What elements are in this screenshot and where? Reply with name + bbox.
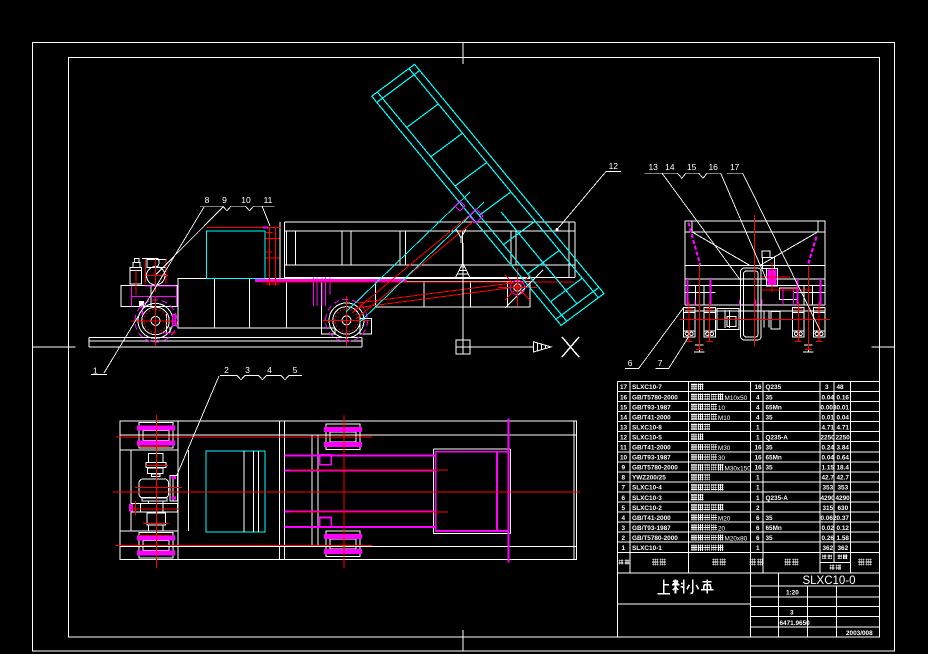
svg-text:14: 14 [665, 162, 675, 172]
svg-text:48: 48 [837, 384, 845, 391]
svg-text:4290: 4290 [836, 495, 851, 502]
svg-text:0.24: 0.24 [822, 445, 835, 452]
svg-text:SLXC10-7: SLXC10-7 [632, 384, 662, 391]
svg-text:0.37: 0.37 [837, 515, 850, 522]
svg-text:SLXC10-2: SLXC10-2 [632, 505, 662, 512]
svg-text:M20: M20 [718, 516, 731, 523]
svg-text:65Mn: 65Mn [766, 404, 782, 411]
svg-text:2: 2 [224, 365, 229, 375]
svg-text:5: 5 [622, 505, 626, 512]
svg-text:353: 353 [823, 485, 834, 492]
svg-text:35: 35 [766, 535, 774, 542]
svg-text:0.26: 0.26 [822, 535, 835, 542]
svg-text:42.7: 42.7 [837, 475, 850, 482]
svg-text:GB/T41-2000: GB/T41-2000 [632, 445, 671, 452]
svg-text:7: 7 [658, 358, 663, 368]
svg-text:0.04: 0.04 [822, 394, 835, 401]
svg-text:9: 9 [622, 465, 626, 472]
svg-text:0.04: 0.04 [822, 455, 835, 462]
svg-text:10: 10 [241, 195, 251, 205]
svg-text:0.64: 0.64 [837, 455, 850, 462]
svg-text:Q235-A: Q235-A [766, 435, 789, 442]
svg-text:6: 6 [756, 515, 760, 522]
svg-text:4: 4 [756, 394, 760, 401]
svg-text:Q235-A: Q235-A [766, 495, 789, 502]
svg-text:4: 4 [756, 404, 760, 411]
svg-text:6: 6 [622, 495, 626, 502]
svg-text:M30x150: M30x150 [725, 465, 752, 472]
svg-text:4: 4 [756, 414, 760, 421]
svg-text:10: 10 [718, 405, 726, 412]
svg-text:1: 1 [756, 435, 760, 442]
svg-text:SLXC10-3: SLXC10-3 [632, 495, 662, 502]
svg-text:GB/T5780-2000: GB/T5780-2000 [632, 394, 678, 401]
svg-text:16: 16 [755, 455, 763, 462]
svg-text:3.84: 3.84 [837, 445, 850, 452]
svg-text:65Mn: 65Mn [766, 455, 782, 462]
svg-text:16: 16 [755, 445, 763, 452]
svg-text:35: 35 [766, 445, 774, 452]
svg-text:4.71: 4.71 [837, 424, 850, 431]
svg-text:GB/T93-1987: GB/T93-1987 [632, 455, 671, 462]
svg-text:7: 7 [622, 485, 626, 492]
svg-text:630: 630 [838, 505, 849, 512]
svg-text:0.01: 0.01 [837, 404, 850, 411]
svg-text:3: 3 [825, 384, 829, 391]
svg-text:16: 16 [755, 384, 763, 391]
svg-text:YWZ200/25: YWZ200/25 [632, 475, 666, 482]
svg-text:2250: 2250 [821, 435, 836, 442]
svg-text:8: 8 [622, 475, 626, 482]
svg-text:GB/T5780-2000: GB/T5780-2000 [632, 535, 678, 542]
svg-text:18.4: 18.4 [837, 465, 850, 472]
svg-text:10: 10 [620, 455, 628, 462]
svg-text:0.003: 0.003 [821, 404, 837, 411]
svg-text:8: 8 [205, 195, 210, 205]
svg-text:35: 35 [766, 515, 774, 522]
svg-text:1: 1 [756, 424, 760, 431]
svg-text:12: 12 [620, 435, 628, 442]
svg-text:0.12: 0.12 [837, 525, 850, 532]
svg-text:14: 14 [620, 414, 628, 421]
svg-text:1: 1 [622, 545, 626, 552]
svg-text:353: 353 [838, 485, 849, 492]
svg-text:1.15: 1.15 [822, 465, 835, 472]
svg-text:0.04: 0.04 [837, 414, 850, 421]
svg-text:16: 16 [620, 394, 628, 401]
svg-text:3: 3 [245, 365, 250, 375]
svg-text:6: 6 [628, 358, 633, 368]
svg-text:0.01: 0.01 [822, 414, 835, 421]
svg-text:1:20: 1:20 [786, 590, 799, 597]
svg-text:12: 12 [609, 161, 619, 171]
svg-text:65Mn: 65Mn [766, 525, 782, 532]
svg-text:5: 5 [293, 365, 298, 375]
svg-text:GB/T93-1987: GB/T93-1987 [632, 404, 671, 411]
svg-text:30: 30 [718, 455, 726, 462]
svg-text:35: 35 [766, 414, 774, 421]
svg-text:1.58: 1.58 [837, 535, 850, 542]
svg-text:315: 315 [823, 505, 834, 512]
svg-text:1: 1 [756, 485, 760, 492]
svg-text:35: 35 [766, 394, 774, 401]
svg-text:4: 4 [622, 515, 626, 522]
svg-text:1: 1 [756, 495, 760, 502]
svg-text:GB/T41-2000: GB/T41-2000 [632, 414, 671, 421]
svg-text:11: 11 [620, 445, 627, 452]
svg-text:0.16: 0.16 [837, 394, 850, 401]
svg-text:SLXC10-1: SLXC10-1 [632, 545, 662, 552]
svg-text:M20x80: M20x80 [725, 536, 748, 543]
svg-text:4: 4 [267, 365, 272, 375]
svg-text:2: 2 [622, 535, 626, 542]
svg-text:GB/T5780-2000: GB/T5780-2000 [632, 465, 678, 472]
svg-text:SLXC10-4: SLXC10-4 [632, 485, 662, 492]
svg-text:1: 1 [93, 366, 98, 376]
svg-text:35: 35 [766, 465, 774, 472]
svg-text:6: 6 [756, 535, 760, 542]
svg-text:3: 3 [790, 609, 794, 616]
svg-text:13: 13 [648, 162, 658, 172]
svg-text:4.71: 4.71 [822, 424, 835, 431]
svg-text:42.7: 42.7 [822, 475, 835, 482]
svg-text:3: 3 [622, 525, 626, 532]
svg-text:0.062: 0.062 [821, 515, 837, 522]
svg-text:GB/T41-2000: GB/T41-2000 [632, 515, 671, 522]
svg-text:GB/T93-1987: GB/T93-1987 [632, 525, 671, 532]
svg-text:2003/008: 2003/008 [846, 630, 873, 637]
svg-text:20: 20 [718, 526, 726, 533]
svg-text:11: 11 [264, 195, 273, 205]
svg-text:SLXC10-5: SLXC10-5 [632, 435, 662, 442]
svg-text:1: 1 [756, 545, 760, 552]
svg-text:16: 16 [755, 465, 763, 472]
svg-text:362: 362 [823, 545, 834, 552]
svg-text:SLXC10-0: SLXC10-0 [802, 575, 855, 587]
svg-text:1: 1 [756, 475, 760, 482]
svg-text:17: 17 [730, 162, 740, 172]
svg-text:15: 15 [620, 404, 628, 411]
svg-text:13: 13 [620, 424, 628, 431]
svg-text:2250: 2250 [836, 435, 851, 442]
svg-text:17: 17 [620, 384, 628, 391]
svg-text:M10x50: M10x50 [725, 395, 748, 402]
svg-text:6: 6 [756, 525, 760, 532]
svg-text:M30: M30 [718, 445, 731, 452]
svg-text:362: 362 [838, 545, 849, 552]
svg-text:15: 15 [687, 162, 697, 172]
svg-text:M10: M10 [718, 415, 731, 422]
svg-text:0.02: 0.02 [822, 525, 835, 532]
svg-text:Q235: Q235 [766, 384, 782, 391]
svg-text:9: 9 [222, 195, 227, 205]
svg-text:SLXC10-8: SLXC10-8 [632, 424, 662, 431]
svg-text:2: 2 [756, 505, 760, 512]
svg-text:16: 16 [708, 162, 718, 172]
svg-text:6471.9650: 6471.9650 [780, 620, 811, 627]
svg-text:4290: 4290 [821, 495, 836, 502]
